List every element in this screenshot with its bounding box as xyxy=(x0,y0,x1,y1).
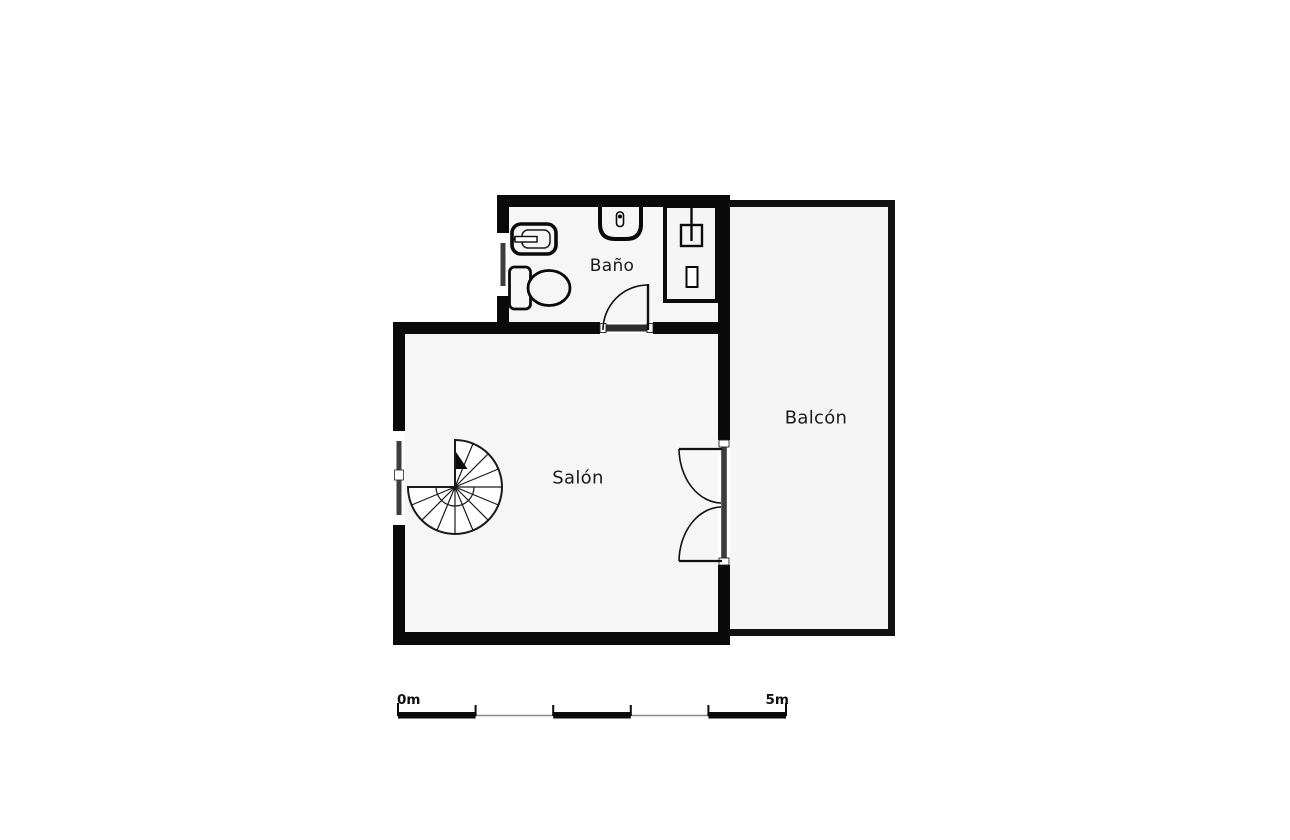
balcon-label: Balcón xyxy=(785,408,848,429)
wall-balcony-bottom xyxy=(730,629,895,636)
bidet-faucet xyxy=(515,237,537,243)
wall-salon-bottom xyxy=(393,632,730,645)
shower xyxy=(665,206,717,301)
wall-balcony-top xyxy=(730,200,895,207)
wall-right-upper xyxy=(718,195,730,440)
wall-balcony-right xyxy=(888,200,895,636)
scale-segment xyxy=(708,712,786,719)
window-glazing xyxy=(501,243,506,286)
salon-label: Salón xyxy=(552,468,603,489)
floor-plan-drawing xyxy=(0,0,1290,840)
window-salon xyxy=(393,431,405,525)
shower-drain xyxy=(687,267,698,287)
wall-salon-top-right xyxy=(653,322,730,334)
washbasin xyxy=(600,207,641,239)
door-jamb xyxy=(719,440,729,447)
toilet xyxy=(510,267,571,309)
window-mullion xyxy=(395,470,404,480)
scale-segments xyxy=(398,712,786,719)
scale-label-start: 0m xyxy=(397,692,420,708)
scale-bar xyxy=(398,703,786,719)
scale-segment xyxy=(398,712,476,719)
washbasin-faucet xyxy=(617,212,624,227)
floor-plan: Baño Salón Balcón 0m 5m xyxy=(0,0,1290,840)
door-glazing xyxy=(721,447,727,558)
wall-salon-top-left xyxy=(393,322,600,334)
scale-label-end: 5m xyxy=(766,692,789,708)
bidet xyxy=(512,224,556,254)
door-threshold xyxy=(606,325,647,332)
washbasin-faucet-dot xyxy=(618,215,622,219)
bano-label: Baño xyxy=(590,256,634,276)
window-bano xyxy=(497,233,509,296)
wall-salon-left-upper xyxy=(393,322,405,431)
toilet-bowl xyxy=(528,271,570,306)
wall-salon-left-lower xyxy=(393,525,405,645)
scale-segment xyxy=(553,712,631,719)
wall-bathroom-left-upper xyxy=(497,195,509,233)
